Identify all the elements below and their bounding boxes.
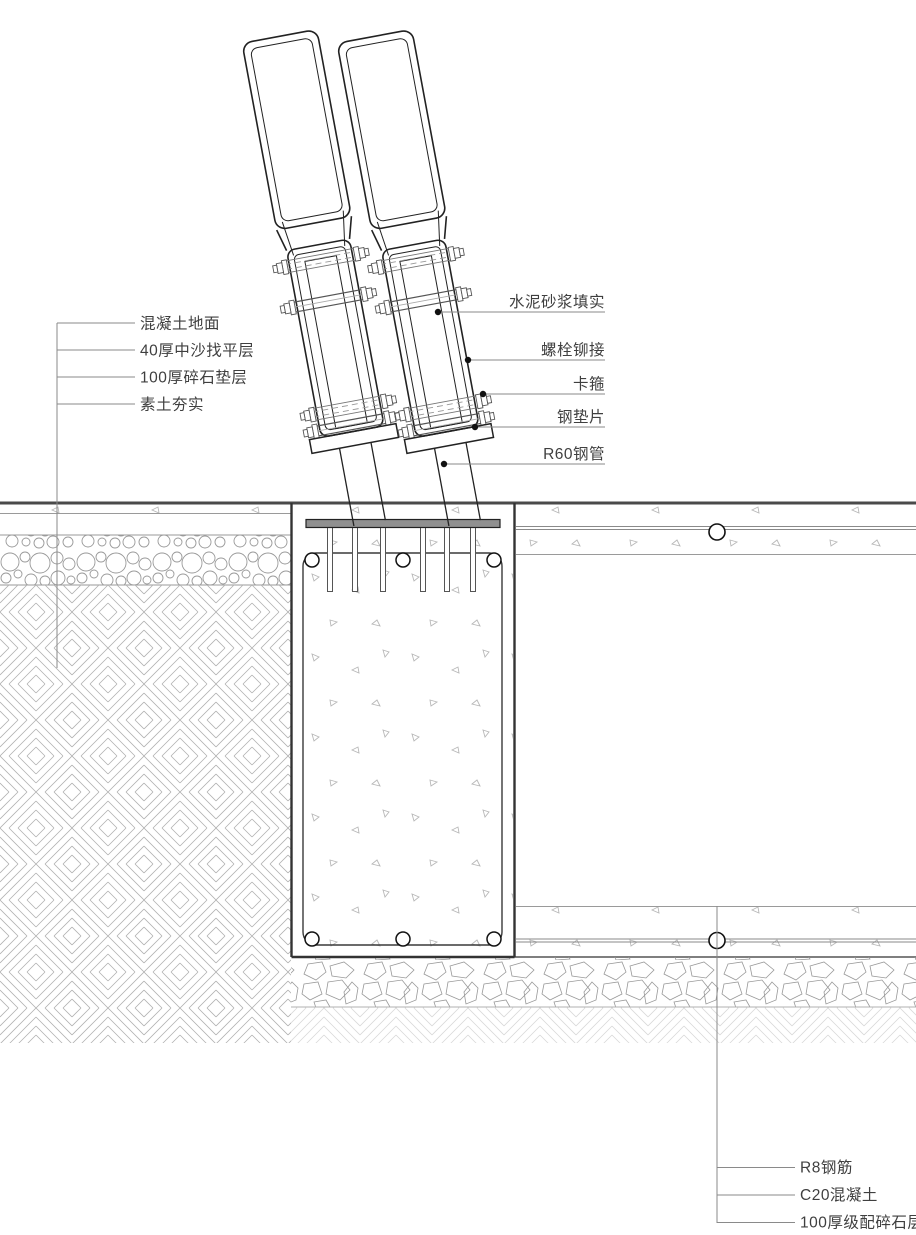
lower-concrete-slab	[515, 907, 916, 958]
label-gravel-cushion: 100厚碎石垫层	[140, 369, 247, 387]
upper-concrete-slab	[516, 505, 916, 555]
label-cement-mortar: 水泥砂浆填实	[509, 293, 605, 311]
label-compacted-soil: 素土夯实	[140, 396, 204, 414]
label-graded-stone: 100厚级配碎石层	[800, 1214, 916, 1232]
foundation-block	[292, 503, 515, 957]
foundation-concrete-fill	[293, 505, 513, 955]
label-clamp: 卡箍	[573, 375, 605, 393]
construction-detail-drawing: 混凝土地面 40厚中沙找平层 100厚碎石垫层 素土夯实 水泥砂浆填实 螺栓铆接…	[0, 0, 916, 1235]
label-c20-concrete: C20混凝土	[800, 1186, 878, 1204]
label-sand-leveling: 40厚中沙找平层	[140, 342, 254, 360]
rebar-section-circle	[709, 524, 725, 540]
post-right	[327, 27, 513, 531]
label-bolt-rivet: 螺栓铆接	[541, 341, 605, 359]
label-concrete-ground: 混凝土地面	[140, 315, 220, 333]
concrete-pavement-layer	[0, 505, 291, 535]
graded-stone-layer	[291, 957, 916, 1007]
label-steel-shim: 钢垫片	[557, 408, 605, 426]
base-plate	[306, 520, 500, 528]
drawing-canvas: 混凝土地面 40厚中沙找平层 100厚碎石垫层 素土夯实 水泥砂浆填实 螺栓铆接…	[0, 0, 916, 1235]
compacted-soil-hatch-right	[291, 1007, 916, 1043]
compacted-soil-hatch-left	[0, 585, 291, 1043]
label-r8-rebar: R8钢筋	[800, 1159, 853, 1177]
gravel-cushion-layer	[0, 535, 291, 585]
right-labels: 水泥砂浆填实 螺栓铆接 卡箍 钢垫片 R60钢管	[435, 293, 605, 467]
left-label-texts: 混凝土地面 40厚中沙找平层 100厚碎石垫层 素土夯实	[140, 315, 254, 414]
post-left	[232, 27, 418, 531]
label-steel-pipe: R60钢管	[543, 445, 605, 463]
